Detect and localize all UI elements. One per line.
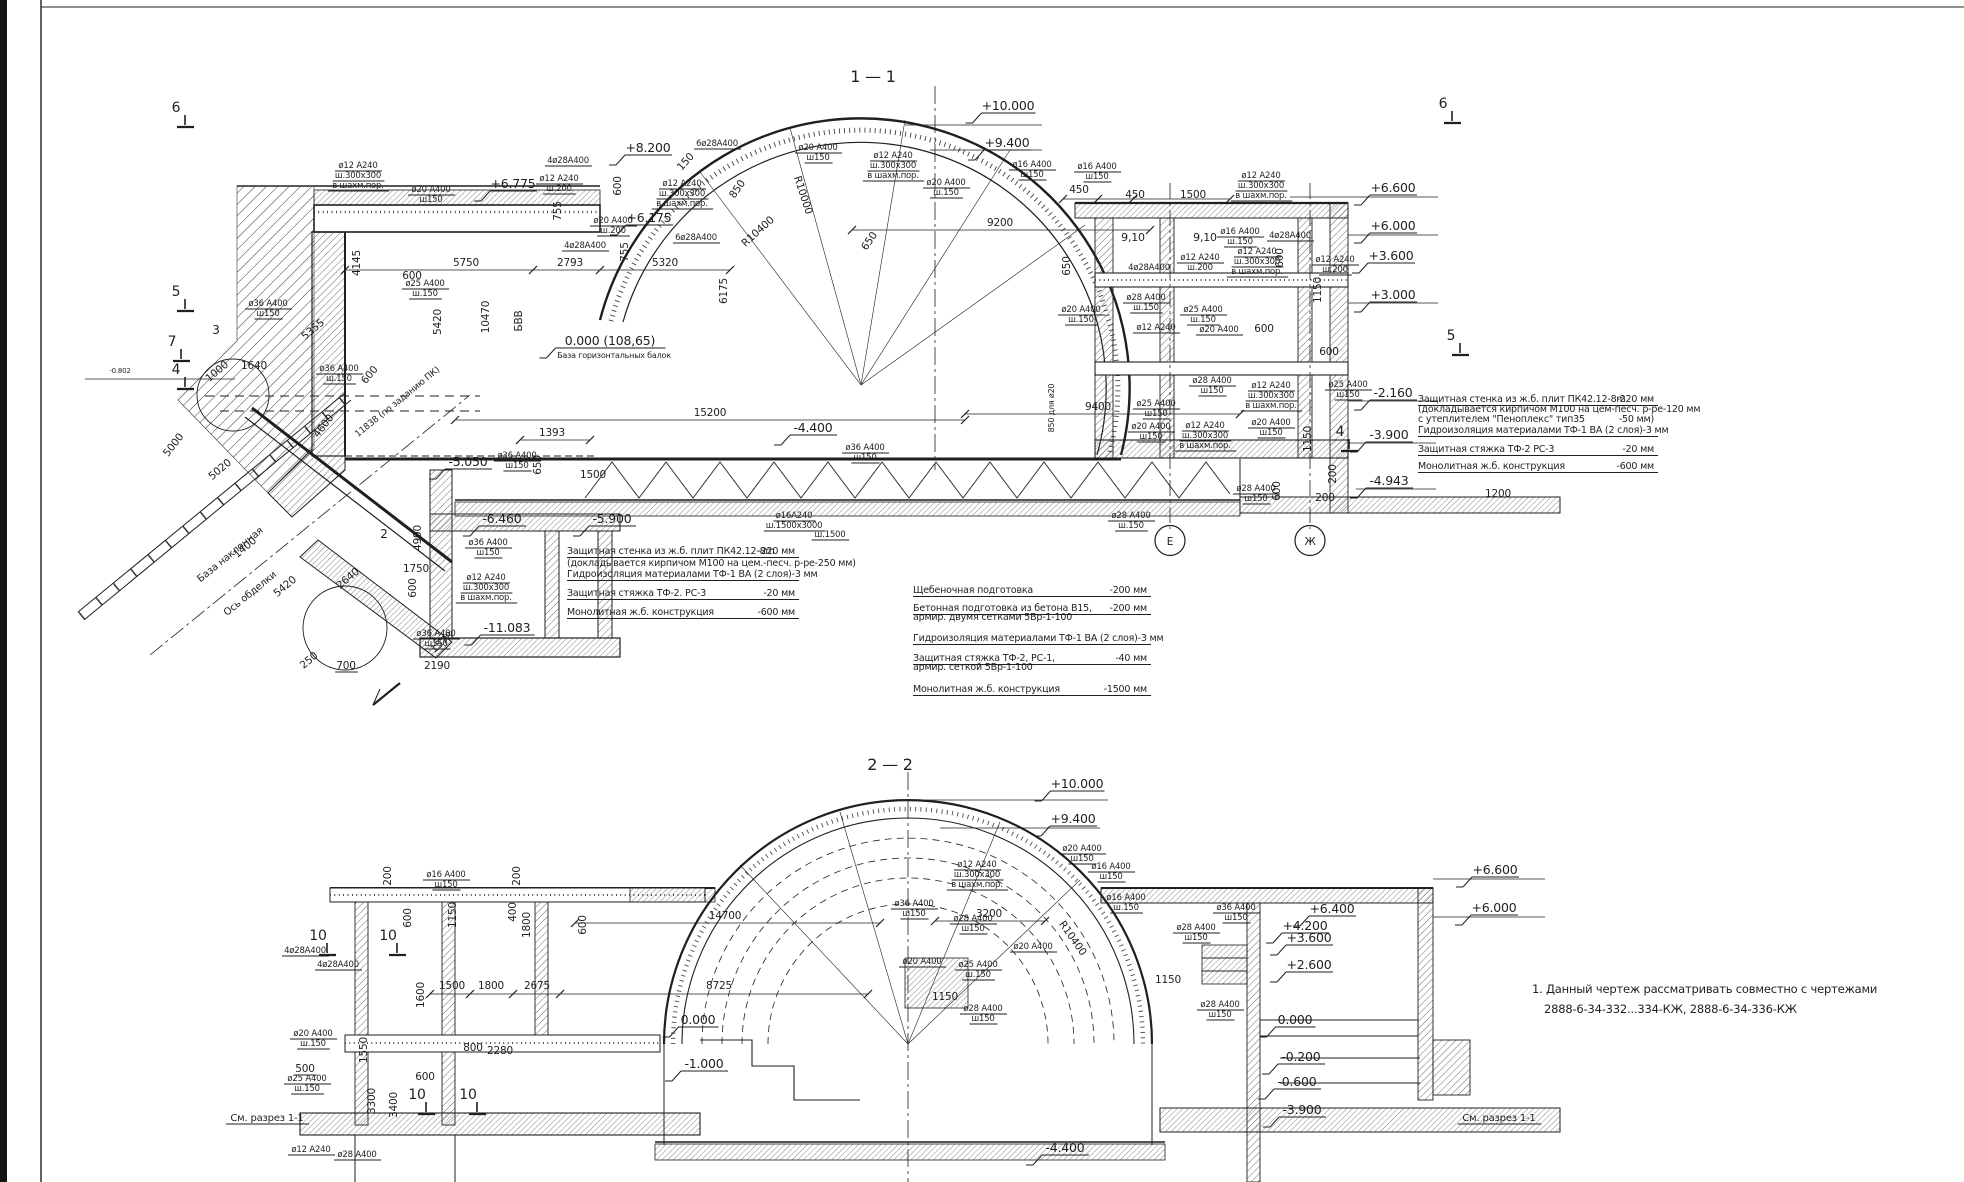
dimension-label: 5750	[453, 257, 479, 269]
dimension-label: 1800	[521, 912, 533, 938]
spec-center-row-value: -200 мм	[1109, 603, 1147, 614]
rebar-label: ø12 A240ш.300x300в шахм.пор.	[1235, 171, 1287, 201]
section-marker: 6	[1439, 96, 1448, 112]
elevation-mark: +6.600	[1472, 862, 1517, 877]
rebar-label: ø12 A240ш.300x300в шахм.пор.	[1179, 421, 1231, 451]
dimension-label: 2280	[487, 1045, 513, 1057]
dimension-label: 3400	[388, 1092, 400, 1118]
dimension-label: 1200	[1485, 488, 1511, 500]
elevation-arrow	[1361, 195, 1370, 205]
elevation-mark: -3.900	[1282, 1102, 1321, 1117]
dimension-label: 1150	[1155, 974, 1181, 986]
dimension-label: 600	[577, 915, 589, 934]
rebar-label: 4ø28A400	[317, 960, 359, 970]
dimension-label: 1393	[539, 427, 565, 439]
elevation-mark: -1.000	[684, 1056, 723, 1071]
see-section-ref: См. разрез 1-1	[1462, 1113, 1535, 1124]
spec-right-row-label: с утеплителем "Пеноплекс" тип35	[1418, 414, 1585, 425]
spec-left-row-label: Гидроизоляция материалами ТФ-1 ВА (2 сло…	[567, 569, 817, 580]
dimension-label: 4145	[351, 250, 363, 276]
section-marker: 10	[309, 928, 326, 944]
section-2-geometry	[300, 683, 1560, 1182]
section-marker: 10	[459, 1087, 476, 1103]
dimension-label: 2675	[524, 980, 550, 992]
right-block-roof	[1075, 203, 1348, 218]
spec-right-row-label: Защитная стяжка ТФ-2 РС-3	[1418, 444, 1554, 455]
floor-trusses	[585, 462, 1230, 498]
elevation-mark: 0.000 (108,65)	[565, 333, 655, 348]
dimension-label: БВВ	[513, 310, 525, 331]
dimension-label: 650	[1061, 256, 1073, 275]
elevation-arrow	[1265, 1089, 1274, 1099]
rebar-label: ø28 A400	[337, 1150, 376, 1160]
dimension-label: 1500	[1180, 189, 1206, 201]
rebar-label: 4ø28A400	[1269, 231, 1311, 241]
spec-center-row-label: армир. двумя сетками 5Вр-1-100	[913, 612, 1072, 623]
dimension-label: 9,10	[1193, 231, 1217, 244]
elevation-arrow	[1361, 400, 1370, 410]
spec-left-row-label: (докладывается кирпичом М100 на цем.-пес…	[567, 558, 856, 569]
dimension-label: 10470	[480, 301, 492, 333]
dimension-label: 600	[612, 176, 624, 195]
elevation-arrow	[1463, 877, 1472, 887]
rebar-label: 4ø28A400	[1128, 263, 1170, 273]
elevation-mark: +10.000	[982, 98, 1035, 113]
dimension-label: 15200	[694, 407, 726, 419]
dimension-label: База горизонтальных балок	[557, 351, 671, 360]
dimension-label: 2793	[557, 257, 583, 269]
dimension-label: 8725	[706, 980, 732, 992]
dimension-label: 1150	[447, 902, 459, 928]
elevation-mark: 0.000	[1278, 1012, 1313, 1027]
elevation-arrow	[1041, 826, 1050, 836]
dimension-label: 6175	[718, 278, 730, 304]
dimension-label: 800	[463, 1042, 482, 1054]
dimension-label: 600	[359, 364, 381, 387]
elevation-mark: +6.400	[1309, 901, 1354, 916]
section-marker: 4	[172, 362, 181, 378]
see-section-ref: См. разрез 1-1	[230, 1113, 303, 1124]
rebar-label: 6ø28A400	[675, 233, 717, 243]
rebar-label: 4ø28A400	[547, 156, 589, 166]
rebar-label: 4ø28A400	[564, 241, 606, 251]
dimension-label: 200	[1315, 492, 1334, 504]
elevation-arrow	[672, 1071, 681, 1081]
elevation-mark: -3.900	[1369, 427, 1408, 442]
dimension-label: 1640	[241, 360, 267, 372]
elevation-mark: +6.000	[1471, 900, 1516, 915]
dimension-label: 700	[336, 660, 355, 672]
elevation-arrow	[1277, 972, 1286, 982]
elevation-mark: -5.900	[592, 511, 631, 526]
elevation-arrow	[1361, 233, 1370, 243]
dimension-label: 1500	[580, 469, 606, 481]
dimension-label: 200	[382, 866, 394, 885]
dimension-label: 200	[511, 866, 523, 885]
rebar-label: ø12 A240	[1136, 323, 1175, 333]
elevation-mark: -5.050	[448, 454, 487, 469]
dimension-label: 1750	[403, 563, 429, 575]
general-note-line: 1. Данный чертеж рассматривать совместно…	[1532, 982, 1877, 996]
elevation-mark: +6.775	[490, 176, 535, 191]
section-marker: 5	[1447, 328, 1456, 344]
elevation-mark: +3.600	[1368, 248, 1413, 263]
elevation-arrow	[616, 155, 625, 165]
incline-base-label: База наклонная	[195, 525, 265, 585]
dimension-label: 400	[507, 902, 519, 921]
section-marker: 10	[408, 1087, 425, 1103]
dimension-label: 1150	[932, 991, 958, 1003]
elevation-mark: -11.083	[484, 620, 531, 635]
elevation-arrow	[1042, 791, 1051, 801]
dimension-label: 5320	[652, 257, 678, 269]
center-steps	[700, 1040, 860, 1100]
dimension-label: 200	[1327, 464, 1339, 483]
dimension-label: R10000	[791, 174, 815, 215]
elevation-arrow	[547, 348, 556, 358]
elevation-mark: +8.200	[625, 140, 670, 155]
lining-axis-label: Ось обделки	[222, 569, 279, 618]
rebar-label: ø12 A240ш.300x300в шахм.пор.	[867, 151, 919, 181]
dimension-label: 450	[1125, 189, 1144, 201]
elevation-mark: +3.000	[1370, 287, 1415, 302]
axis-bubble: Е	[1167, 536, 1173, 548]
section-1-title: 1 — 1	[850, 67, 896, 86]
elevation-arrow	[1273, 933, 1282, 943]
spec-center-row-value: -1500 мм	[1104, 684, 1147, 695]
dimension-label: 1800	[478, 980, 504, 992]
dimension-label: 250	[298, 650, 321, 672]
section-marker: 10	[379, 928, 396, 944]
rebar-label: ø20 A400	[902, 957, 941, 967]
spec-center-row-value: -200 мм	[1109, 585, 1147, 596]
elevation-mark: +2.600	[1286, 957, 1331, 972]
elevation-mark: +9.400	[1050, 811, 1095, 826]
rebar-label: ø12 A240	[291, 1145, 330, 1155]
dimension-label: 9400	[1085, 401, 1111, 413]
section-marker: 5	[172, 284, 181, 300]
dimension-label: 850	[727, 178, 748, 201]
elevation-mark: +10.000	[1051, 776, 1104, 791]
dimension-label: -0.802	[109, 367, 130, 375]
elevation-arrow	[973, 113, 982, 123]
elevation-arrow	[1269, 1064, 1278, 1074]
right-step-slab	[1240, 497, 1560, 513]
section-marker: 6	[172, 100, 181, 116]
spec-right-row-label: Монолитная ж.б. конструкция	[1418, 461, 1565, 472]
section-2-title: 2 — 2	[867, 755, 913, 774]
elevation-arrow	[1357, 442, 1366, 452]
elevation-arrow	[1361, 302, 1370, 312]
spec-center-row-value: -40 мм	[1115, 653, 1147, 664]
spec-left-row-label: Защитная стенка из ж.б. плит ПК42.12-8m	[567, 546, 774, 557]
elevation-arrow	[1462, 915, 1471, 925]
dimension-label: 1150	[1312, 277, 1324, 303]
dimension-label: 5420	[432, 309, 444, 335]
elevation-mark: +6.600	[1370, 180, 1415, 195]
rebar-label: ø12 A240ш.300x300в шахм.пор.	[656, 179, 708, 209]
spec-right-row-value: -20 мм	[1622, 444, 1654, 455]
dimension-label: 600	[415, 1071, 434, 1083]
section-marker: 4	[1336, 424, 1345, 440]
rebar-label: ø12 A240ш.300x300в шахм.пор.	[460, 573, 512, 603]
dimension-label: 5000	[161, 431, 186, 459]
elevation-mark: -2.160	[1373, 385, 1412, 400]
dimension-label: 9200	[987, 217, 1013, 229]
elevation-mark: -0.600	[1277, 1074, 1316, 1089]
spec-right-row-label: Гидроизоляция материалами ТФ-1 ВА (2 сло…	[1418, 425, 1668, 436]
dimension-label: 850 для ø20	[1047, 384, 1056, 433]
elevation-mark: +6.000	[1370, 218, 1415, 233]
elevation-mark: -6.460	[482, 511, 521, 526]
drawing-sheet: 1 — 16657454329,109,10ЕЖ+10.000+9.400+8.…	[0, 0, 1964, 1182]
dimension-label: 14700	[709, 910, 741, 922]
axis-bubble: Ж	[1304, 536, 1316, 548]
section-marker: 7	[168, 334, 177, 350]
general-note-line: 2888-6-34-332...334-КЖ, 2888-6-34-336-КЖ	[1544, 1002, 1798, 1016]
dimension-label: 1550	[358, 1037, 370, 1063]
rebar-label: ø12 A240ш.300x300в шахм.пор.	[951, 860, 1003, 890]
dimension-label: 5020	[206, 457, 234, 483]
elevation-mark: +9.400	[984, 135, 1029, 150]
rebar-label: ø20 A400	[1199, 325, 1238, 335]
spec-left-row-value: -20 мм	[763, 588, 795, 599]
scan-edge	[0, 0, 7, 1182]
rebar-label: ø20 A400	[1013, 942, 1052, 952]
elevation-mark: +3.600	[1286, 930, 1331, 945]
elevation-mark: -4.400	[1045, 1140, 1084, 1155]
rebar-label: ø12 A240ш.300x300в шахм.пор.	[332, 161, 384, 191]
dimension-label: 450	[1069, 184, 1088, 196]
dimension-label: 600	[407, 578, 419, 597]
spec-left-row-value: -600 мм	[757, 607, 795, 618]
spec-center-row-label: армир. сеткой 5Вр-1-100	[913, 662, 1033, 673]
rebar-label: ø12 A240ш.300x300в шахм.пор.	[1231, 247, 1283, 277]
dimension-label: 755	[619, 242, 631, 261]
elevation-mark: -4.400	[793, 420, 832, 435]
dimension-label: 2	[380, 527, 387, 541]
rebar-label: 4ø28A400	[284, 946, 326, 956]
spec-left-row-value: -220 мм	[757, 546, 795, 557]
spec-center-row-label: Монолитная ж.б. конструкция	[913, 684, 1060, 695]
dimension-label: 600	[1319, 346, 1338, 358]
spec-center-row-label: Гидроизоляция материалами ТФ-1 ВА (2 сло…	[913, 633, 1163, 644]
dimension-label: 150	[675, 151, 697, 173]
elevation-mark: -4.943	[1369, 473, 1408, 488]
elevation-mark: +6.175	[626, 210, 671, 225]
dimension-label: 1150	[1302, 426, 1314, 452]
elevation-arrow	[1277, 945, 1286, 955]
spec-left-row-label: Монолитная ж.б. конструкция	[567, 607, 714, 618]
dimension-label: 755	[552, 201, 564, 220]
dimension-label: 2190	[424, 660, 450, 672]
dimension-label: 1500	[439, 980, 465, 992]
drawing-canvas: 1 — 16657454329,109,10ЕЖ+10.000+9.400+8.…	[0, 0, 1964, 1182]
dimension-label: 600	[402, 908, 414, 927]
dimension-label: 600	[1254, 323, 1273, 335]
elevation-mark: -0.200	[1281, 1049, 1320, 1064]
section-1-geometry	[78, 86, 1560, 670]
dome2-radials	[740, 812, 1080, 1044]
dimension-label: 9,10	[1121, 231, 1145, 244]
rebar-label: 6ø28A400	[696, 139, 738, 149]
dimension-label: 3	[212, 323, 219, 337]
dimension-label: 3300	[366, 1088, 378, 1114]
spec-left-row-label: Защитная стяжка ТФ-2. РС-3	[567, 588, 706, 599]
elevation-arrow	[1359, 263, 1368, 273]
spec-right-row-value: -50 мм)	[1619, 414, 1654, 425]
rebar-label: ш.1500	[815, 530, 846, 540]
spec-right-row-value: -600 мм	[1616, 461, 1654, 472]
dimension-label: 1600	[415, 982, 427, 1008]
elevation-mark: 0.000	[681, 1012, 716, 1027]
elevation-arrow	[781, 435, 790, 445]
spec-center-row-label: Щебеночная подготовка	[913, 585, 1033, 596]
elevation-arrow	[975, 150, 984, 160]
dimension-label: 4990	[412, 525, 424, 551]
dimension-label: 650	[859, 230, 880, 253]
elevation-arrow	[670, 1027, 679, 1037]
rebar-label: ø12 A240ш.300x300в шахм.пор.	[1245, 381, 1297, 411]
